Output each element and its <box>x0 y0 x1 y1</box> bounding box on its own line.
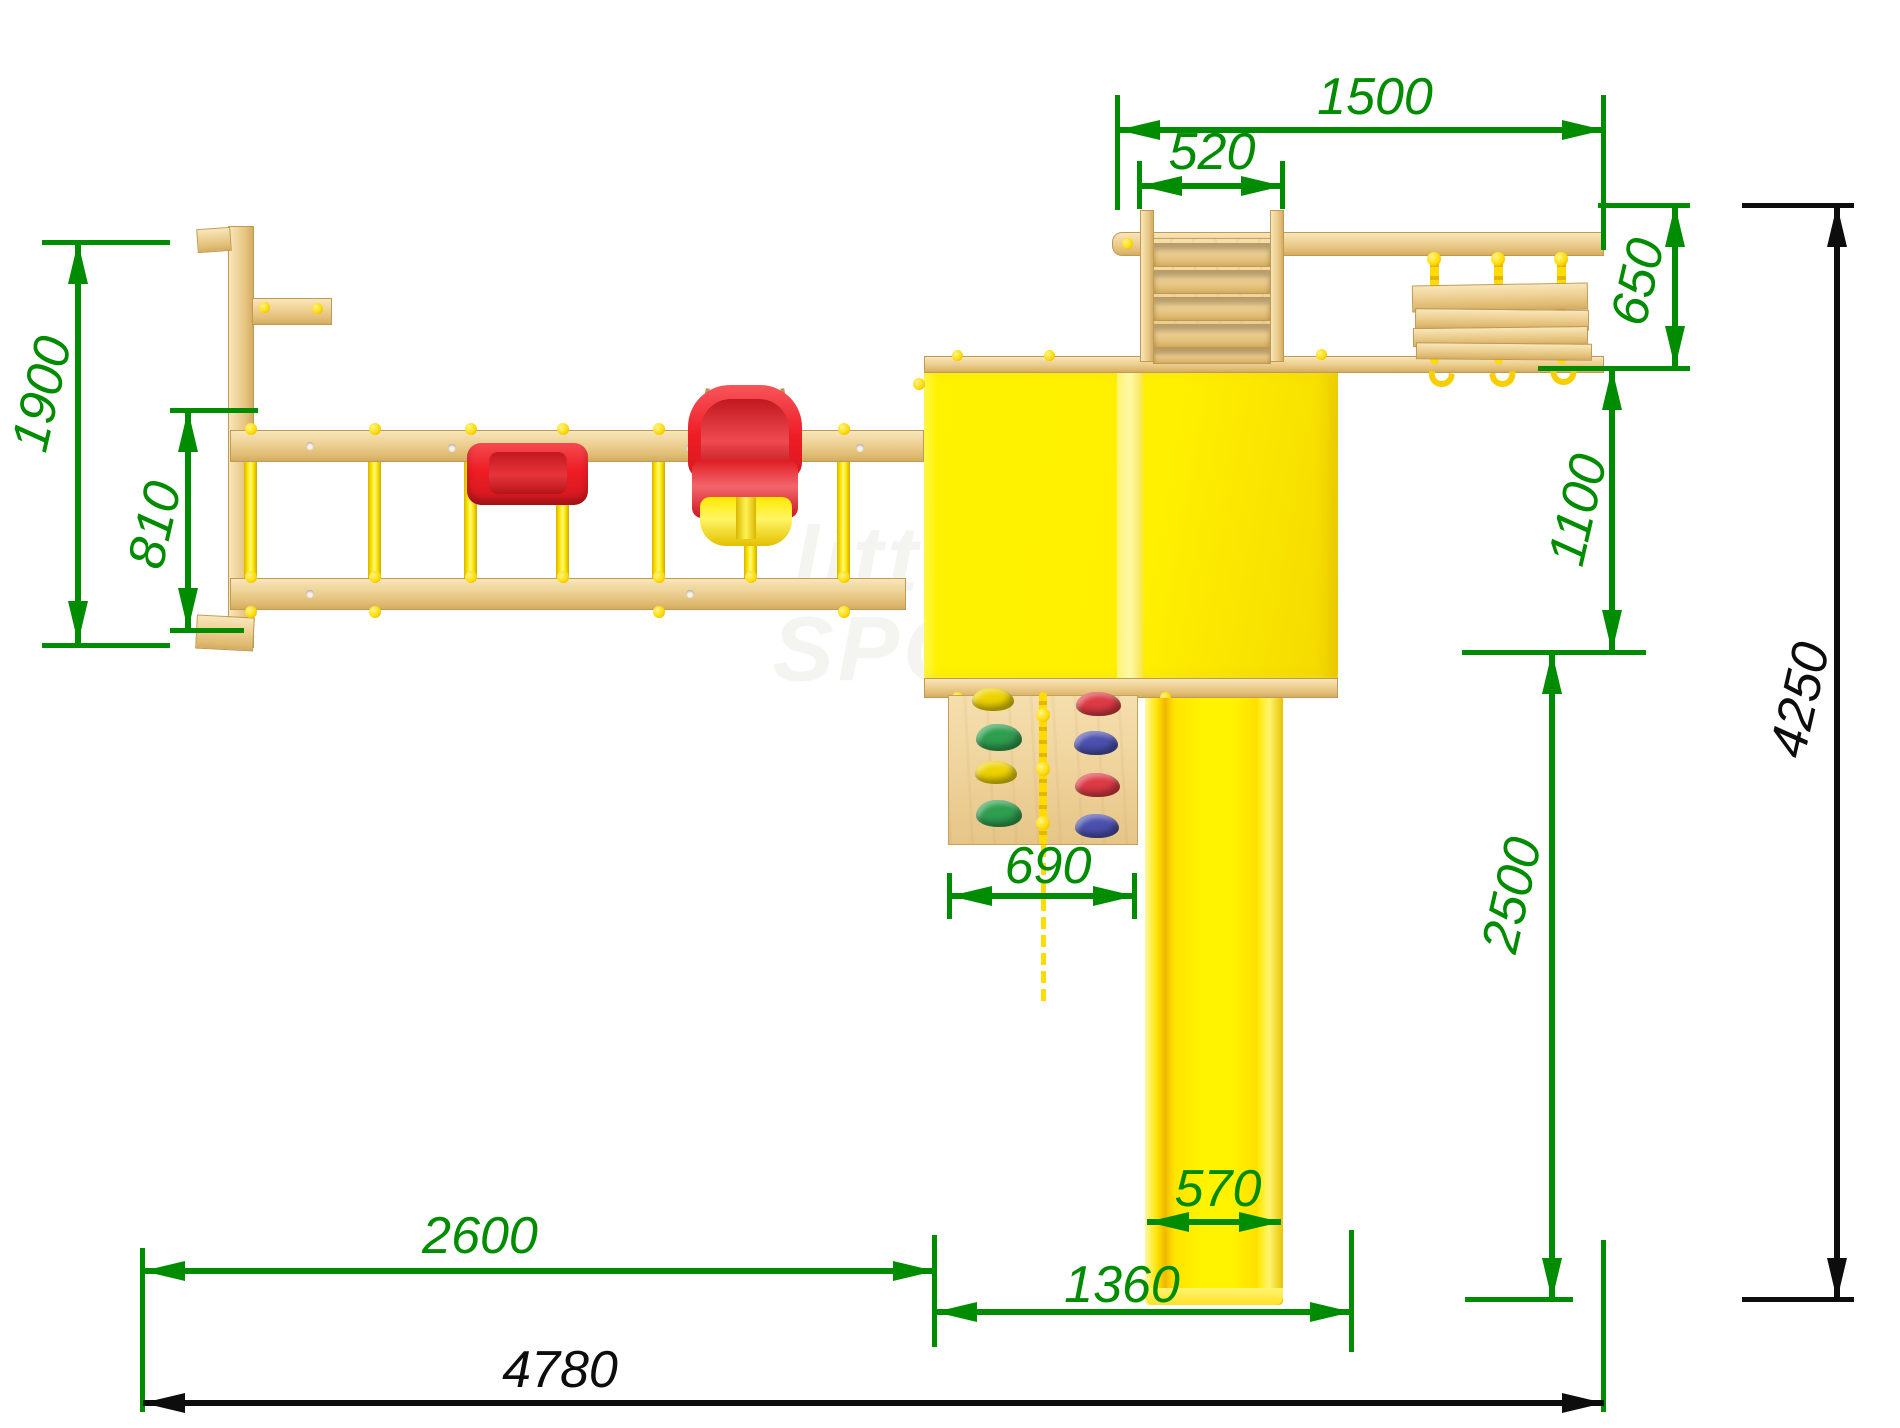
rope-knot <box>1036 816 1050 830</box>
arrowhead <box>935 1302 977 1322</box>
dim-4780-line <box>143 1400 1604 1406</box>
dim-2600-line <box>143 1268 935 1274</box>
arrowhead <box>1093 886 1135 906</box>
ext-line <box>42 643 170 648</box>
climbing-hold-blue <box>1075 814 1119 838</box>
bolt <box>369 606 381 618</box>
dim-4250-label: 4250 <box>1762 638 1839 762</box>
arrowhead <box>1665 326 1685 368</box>
tower-hook <box>913 378 925 390</box>
dim-2600-label: 2600 <box>422 1210 538 1262</box>
bolt <box>653 606 665 618</box>
dim-690-label: 690 <box>1005 840 1092 892</box>
swing-frame-post <box>244 456 257 586</box>
climbing-hold-red <box>1076 692 1121 716</box>
climbing-hold-green <box>976 800 1022 827</box>
ground-tick <box>1465 1297 1573 1302</box>
baby-seat-tbar-post <box>736 497 756 539</box>
arrowhead <box>143 1261 185 1281</box>
tower-panel-seam <box>1117 370 1143 680</box>
bolt-hole <box>856 444 864 452</box>
climbing-hold-red <box>1075 773 1120 797</box>
rope-knot <box>1036 762 1050 776</box>
bolt <box>259 302 270 313</box>
climbing-hold-blue <box>1074 731 1118 755</box>
rope-hook <box>1549 369 1576 386</box>
bolt <box>1044 350 1055 361</box>
arrowhead <box>1310 1302 1352 1322</box>
swing-aframe-bottom-cap <box>195 615 255 652</box>
ladder-rung <box>1153 348 1271 364</box>
ladder-rail-left <box>1140 210 1154 362</box>
swing-bottom-beam <box>230 578 906 610</box>
swing-frame-post <box>368 456 381 586</box>
climbing-hold-yellow <box>972 688 1014 711</box>
bolt <box>745 571 757 583</box>
bolt <box>312 303 323 314</box>
climbing-hold-yellow <box>975 761 1017 784</box>
arrowhead <box>1602 368 1622 410</box>
swing-frame-post <box>652 456 665 586</box>
bolt-hole <box>448 444 456 452</box>
ext-line <box>1349 1230 1354 1352</box>
rope-knot <box>1491 252 1505 266</box>
arrowhead <box>178 588 198 630</box>
arrowhead <box>1827 205 1847 247</box>
dim-2500-line <box>1549 652 1555 1300</box>
bolt <box>557 423 569 435</box>
bolt <box>952 350 963 361</box>
bolt-hole <box>306 590 314 598</box>
rope-knot <box>1554 252 1568 266</box>
bolt <box>465 571 477 583</box>
bolt <box>1316 349 1327 360</box>
bolt <box>838 571 850 583</box>
climbing-hold-green <box>976 724 1022 751</box>
bolt <box>245 423 257 435</box>
rope-hook <box>1489 371 1516 389</box>
drawing-canvas: little SPORT <box>0 0 1900 1428</box>
arrowhead <box>893 1261 935 1281</box>
ladder-rung <box>1153 243 1271 267</box>
arrowhead <box>1542 652 1562 694</box>
arrowhead <box>68 242 88 284</box>
dim-1100-label: 1100 <box>1540 450 1616 571</box>
ext-line <box>1601 95 1606 250</box>
swing-aframe-top-cap <box>196 227 232 253</box>
bolt <box>245 606 257 618</box>
bolt <box>465 423 477 435</box>
rope-hook <box>1427 370 1455 388</box>
ext-line <box>1601 1240 1606 1412</box>
baby-seat-back-inner <box>701 399 789 469</box>
ladder-rail-right <box>1270 210 1284 362</box>
bolt <box>653 571 665 583</box>
ladder-rung <box>1153 324 1271 348</box>
ext-line <box>932 1235 937 1347</box>
dim-1900-label: 1900 <box>4 332 81 456</box>
swing-flat-seat-inner <box>489 452 567 494</box>
bolt <box>557 571 569 583</box>
dim-4780-label: 4780 <box>502 1344 618 1396</box>
dim-1360-label: 1360 <box>1064 1259 1180 1311</box>
dim-570-label: 570 <box>1175 1163 1262 1215</box>
bolt <box>653 423 665 435</box>
dim-1900-line <box>75 242 81 645</box>
bolt <box>838 606 850 618</box>
ext-line <box>42 240 170 245</box>
ext-line <box>1115 95 1120 210</box>
arrowhead <box>1602 610 1622 652</box>
dim-1500-label: 1500 <box>1317 71 1433 123</box>
arrowhead <box>68 601 88 643</box>
arrowhead <box>1562 120 1604 140</box>
arrowhead <box>1542 1258 1562 1300</box>
bolt <box>369 423 381 435</box>
arrowhead <box>950 886 992 906</box>
bridge-plank <box>1416 342 1592 361</box>
swing-frame-post <box>837 456 850 586</box>
rope-knot <box>1036 708 1050 722</box>
dim-810-label: 810 <box>120 477 190 573</box>
arrowhead <box>1827 1258 1847 1300</box>
arrowhead <box>1118 120 1160 140</box>
bolt <box>245 571 257 583</box>
arrowhead <box>1562 1393 1604 1413</box>
bolt-hole <box>686 590 694 598</box>
arrowhead <box>178 410 198 452</box>
bolt <box>369 571 381 583</box>
arrowhead <box>1665 205 1685 247</box>
bolt-hole <box>306 442 314 450</box>
dim-2500-label: 2500 <box>1474 833 1551 957</box>
ladder-rung <box>1153 297 1271 321</box>
ladder-rung <box>1153 270 1271 294</box>
dim-520-label: 520 <box>1169 126 1256 178</box>
bolt <box>1122 238 1133 249</box>
dim-650-label: 650 <box>1603 234 1673 330</box>
dim-4250-line <box>1834 205 1840 1300</box>
bolt <box>838 423 850 435</box>
arrowhead <box>143 1393 185 1413</box>
rope-knot <box>1427 252 1441 266</box>
